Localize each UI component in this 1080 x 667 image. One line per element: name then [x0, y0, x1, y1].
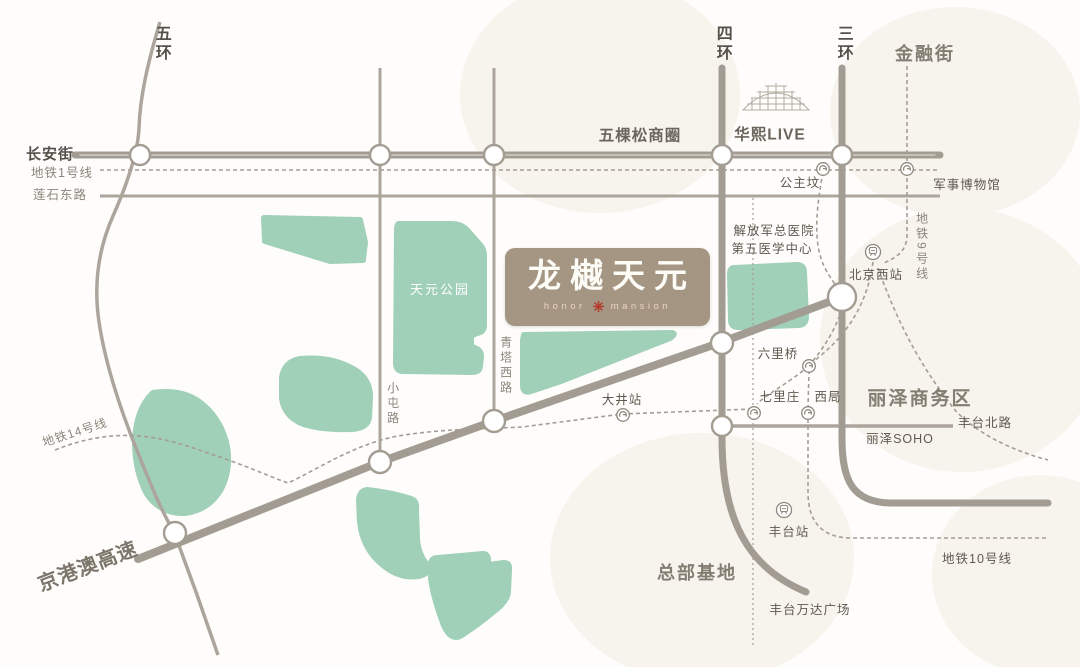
project-subtitle-left: honor	[544, 301, 586, 312]
project-subtitle: honor mansion	[544, 300, 671, 313]
financial-street-label: 金融街	[895, 45, 955, 65]
huaxi-live-label: 华熙LIVE	[734, 126, 805, 143]
metro-line1-label: 地铁1号线	[31, 167, 93, 181]
park-shape	[282, 358, 370, 429]
military-museum-label: 军事博物馆	[933, 179, 1001, 193]
interchange-node	[712, 145, 732, 165]
beijing-west-train-icon	[866, 245, 881, 260]
hospital-label-line2: 第五医学中心	[731, 243, 812, 257]
park-shape	[135, 392, 228, 513]
interchange-node	[832, 145, 852, 165]
arena-icon	[743, 83, 809, 110]
interchange-node	[130, 145, 150, 165]
map-canvas	[0, 0, 1080, 667]
liuliqiao-label: 六里桥	[758, 348, 799, 362]
project-logo-card: 龙樾天元 honor mansion	[505, 248, 710, 326]
interchange-node	[164, 522, 186, 544]
dajing-station-icon	[617, 409, 630, 422]
fengtai-north-road-label: 丰台北路	[958, 417, 1012, 431]
ring5-label: 五环	[152, 25, 170, 63]
qingta-west-road-label: 青塔西路	[498, 336, 511, 396]
project-title: 龙樾天元	[519, 261, 696, 294]
xiju-station-icon	[802, 407, 815, 420]
park-shape	[264, 218, 365, 261]
fengtai-wanda-plaza-label: 丰台万达广场	[769, 604, 850, 618]
lianshi-east-road-label: 莲石东路	[33, 189, 87, 203]
lize-soho-label: 丽泽SOHO	[866, 433, 934, 447]
hospital-label-line1: 解放军总医院	[733, 225, 814, 239]
park-shape	[431, 554, 509, 637]
beijing-west-station-label: 北京西站	[849, 269, 903, 283]
changan-street-label: 长安街	[26, 147, 74, 164]
fengtai-station-label: 丰台站	[769, 526, 810, 540]
qilizhuang-label: 七里庄	[760, 391, 801, 405]
metro-line10-label: 地铁10号线	[942, 553, 1012, 567]
logo-seal-icon	[592, 300, 605, 313]
interchange-node	[483, 410, 505, 432]
interchange-node	[370, 145, 390, 165]
interchange-node	[484, 145, 504, 165]
wukesong-label: 五棵松商圈	[599, 127, 682, 144]
metro-line9-label: 地铁9号线	[914, 212, 927, 282]
military-museum-station-icon	[901, 163, 914, 176]
dajing-station-label: 大井站	[602, 394, 643, 408]
interchange-node	[711, 332, 733, 354]
liuliqiao-station-icon	[803, 360, 816, 373]
headquarters-base-label: 总部基地	[657, 564, 737, 584]
fengtai-train-icon	[777, 503, 792, 518]
project-subtitle-right: mansion	[611, 301, 671, 312]
xiaotun-road-label: 小屯路	[385, 382, 398, 427]
park-shape-tianyuan	[396, 224, 484, 372]
ring3-label: 三环	[834, 25, 852, 63]
xiju-label: 西局	[814, 391, 841, 405]
location-map: 长安街 地铁1号线 莲石东路 五环 四环 三环 金融街 五棵松商圈 华熙LIVE…	[0, 0, 1080, 667]
interchange-node	[369, 451, 391, 473]
gongzhufen-label: 公主坟	[780, 177, 821, 191]
interchange-node-liuliqiao	[828, 283, 856, 311]
interchange-node	[712, 416, 732, 436]
ring4-label: 四环	[713, 25, 731, 63]
tianyuan-park-label: 天元公园	[410, 283, 470, 297]
park-shape	[359, 490, 428, 577]
lize-business-district-label: 丽泽商务区	[867, 390, 972, 411]
qilizhuang-station-icon	[748, 407, 761, 420]
gongzhufen-station-icon	[817, 163, 830, 176]
